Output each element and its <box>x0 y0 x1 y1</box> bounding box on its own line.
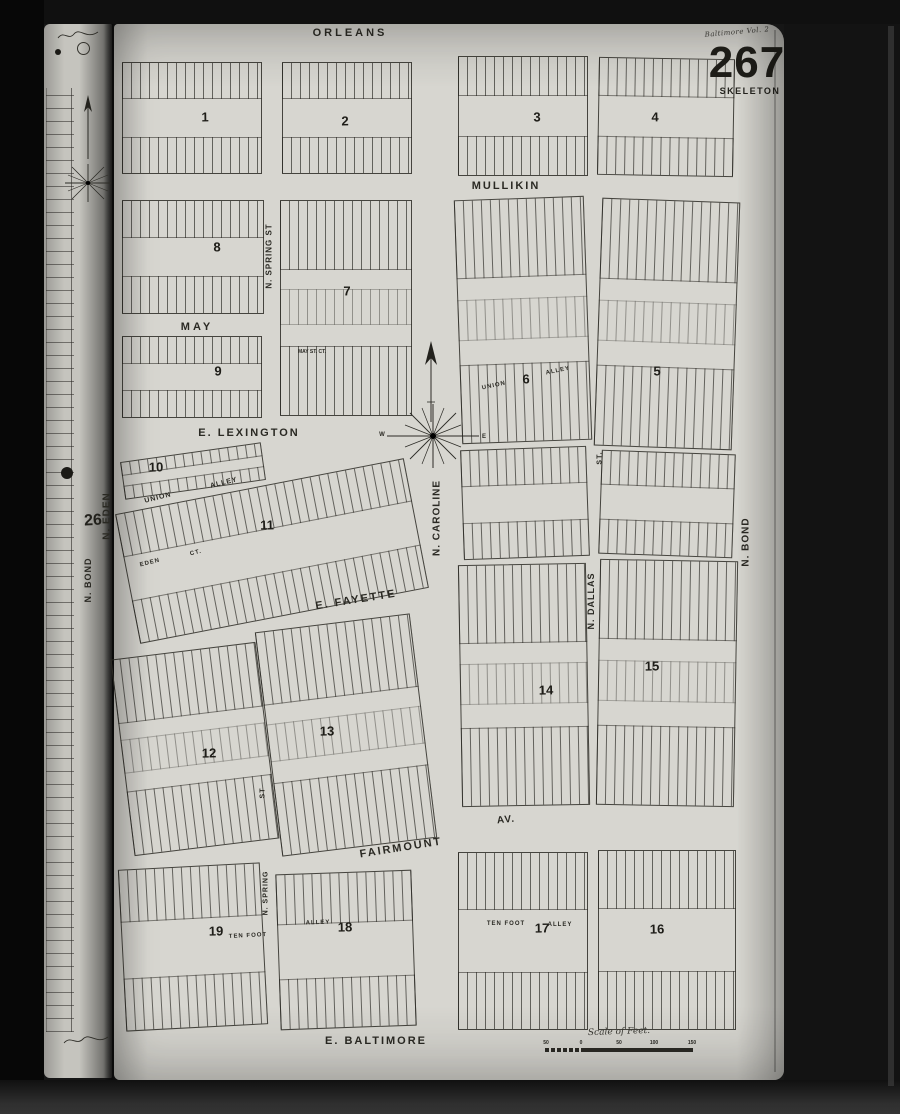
page-edge <box>774 30 776 1072</box>
map-label-av: AV. <box>496 814 515 827</box>
compass-west-label: W <box>379 432 385 438</box>
building-row <box>454 197 587 280</box>
building-row <box>458 853 588 910</box>
map-label-may-st-ct: MAY ST. CT. <box>298 349 326 355</box>
block-number-11: 11 <box>260 517 274 532</box>
handwritten-note <box>56 28 100 42</box>
map-label-alley: ALLEY <box>306 920 331 927</box>
map-label-st: ST <box>260 788 267 799</box>
city-block-1 <box>122 62 262 174</box>
map-symbol-dot <box>61 467 73 479</box>
scanned-sanborn-map: Baltimore Vol. 2 267 SKELETON 26 W E <box>0 0 900 1114</box>
map-label-n-spring: N. SPRING <box>263 871 270 916</box>
city-block-15 <box>596 559 738 807</box>
building-row <box>124 971 269 1031</box>
map-label-n-eden: N. EDEN <box>102 492 113 540</box>
city-block-9 <box>122 336 262 418</box>
building-row <box>458 972 588 1029</box>
city-block-17 <box>458 852 588 1030</box>
city-block-16 <box>598 850 736 1030</box>
plate-number: 267 <box>709 38 785 88</box>
building-row <box>600 199 741 283</box>
building-row <box>599 560 738 641</box>
block-number-6: 6 <box>522 371 529 386</box>
block-number-13: 13 <box>320 723 335 738</box>
scale-tick-label: 50 <box>616 1040 622 1046</box>
building-row <box>598 851 736 909</box>
block-number-14: 14 <box>539 682 554 697</box>
block-number-9: 9 <box>214 363 221 378</box>
building-row <box>266 705 425 762</box>
scanner-background-top <box>0 0 900 24</box>
scanner-background-left <box>0 0 44 1114</box>
block-number-16: 16 <box>650 921 665 936</box>
building-row <box>458 136 588 175</box>
block-number-8: 8 <box>213 239 220 254</box>
building-row <box>280 201 412 270</box>
city-block-3 <box>458 56 588 176</box>
map-label-n-bond: N. BOND <box>741 517 752 566</box>
adjacent-north-arrow-icon <box>81 94 95 160</box>
city-block <box>598 450 736 559</box>
building-row <box>118 863 263 923</box>
building-row <box>122 337 262 364</box>
scanner-background-bottom <box>0 1080 900 1114</box>
adjacent-compass-rose-icon <box>64 160 112 206</box>
city-block-7 <box>280 200 412 416</box>
building-row <box>597 136 734 176</box>
building-row <box>598 971 736 1029</box>
map-label-ten-foot: TEN FOOT <box>487 921 525 927</box>
building-row <box>601 451 736 489</box>
city-block-19 <box>118 862 268 1031</box>
building-row <box>458 57 588 96</box>
scale-tick-label: 100 <box>650 1040 658 1046</box>
scanner-edge-strip <box>888 26 894 1086</box>
block-number-19: 19 <box>209 923 224 938</box>
building-row <box>282 63 412 99</box>
map-label-orleans: ORLEANS <box>313 27 388 39</box>
scale-tick-label: 0 <box>580 1040 583 1046</box>
building-row <box>594 365 735 449</box>
building-row <box>598 660 737 703</box>
scale-tick-label: 50 <box>543 1040 549 1046</box>
building-row <box>275 871 413 926</box>
building-row <box>122 137 262 173</box>
map-symbol-dot <box>55 49 61 55</box>
map-label-alley: ALLEY <box>548 922 573 928</box>
building-row <box>120 723 269 774</box>
adjacent-page-buildings <box>46 88 74 1032</box>
map-symbol-circle <box>77 42 90 55</box>
north-arrow-icon <box>421 340 441 424</box>
building-row <box>597 299 736 345</box>
building-row <box>279 974 417 1029</box>
adjacent-plate-number: 26 <box>84 512 103 531</box>
block-number-2: 2 <box>341 113 348 128</box>
plate-skeleton-label: SKELETON <box>720 86 781 96</box>
city-block-12 <box>110 642 279 856</box>
block-number-10: 10 <box>149 459 164 474</box>
building-row <box>122 390 262 417</box>
map-label-mullikin: MULLIKIN <box>472 180 541 192</box>
city-block-14 <box>458 563 590 807</box>
map-label-may: MAY <box>181 321 213 333</box>
scale-tick-label: 150 <box>688 1040 696 1046</box>
map-label-n-spring-st: N. SPRING ST <box>265 223 274 288</box>
city-block-18 <box>275 870 416 1031</box>
handwritten-note <box>62 1032 110 1048</box>
building-row <box>598 519 733 557</box>
city-block-13 <box>255 613 437 856</box>
building-row <box>461 726 590 806</box>
map-label-n-caroline: N. CAROLINE <box>432 480 443 556</box>
block-number-7: 7 <box>343 283 350 298</box>
map-label-e-baltimore: E. BALTIMORE <box>325 1035 427 1047</box>
block-number-17: 17 <box>535 920 550 935</box>
building-row <box>122 63 262 99</box>
block-number-4: 4 <box>651 109 658 124</box>
building-row <box>122 276 264 313</box>
map-label-n-bond: N. BOND <box>83 558 93 603</box>
building-row <box>458 564 587 644</box>
scanner-background-right <box>784 0 900 1114</box>
building-row <box>460 662 589 705</box>
block-number-15: 15 <box>645 658 660 673</box>
map-label-e-lexington: E. LEXINGTON <box>198 427 299 439</box>
city-block-5 <box>594 198 741 451</box>
building-row <box>596 725 735 806</box>
block-number-3: 3 <box>533 109 540 124</box>
block-number-1: 1 <box>201 109 208 124</box>
building-row <box>282 137 412 173</box>
scale-bar-subdivisions <box>545 1048 583 1052</box>
building-row <box>457 296 588 341</box>
map-label-n-dallas: N. DALLAS <box>586 573 596 630</box>
block-number-12: 12 <box>202 745 217 760</box>
compass-east-label: E <box>482 434 486 440</box>
building-row <box>463 519 590 559</box>
building-row <box>122 201 264 238</box>
block-number-18: 18 <box>338 919 353 934</box>
city-block-8 <box>122 200 264 314</box>
map-label-st: ST. <box>597 451 604 464</box>
block-number-5: 5 <box>653 363 660 378</box>
